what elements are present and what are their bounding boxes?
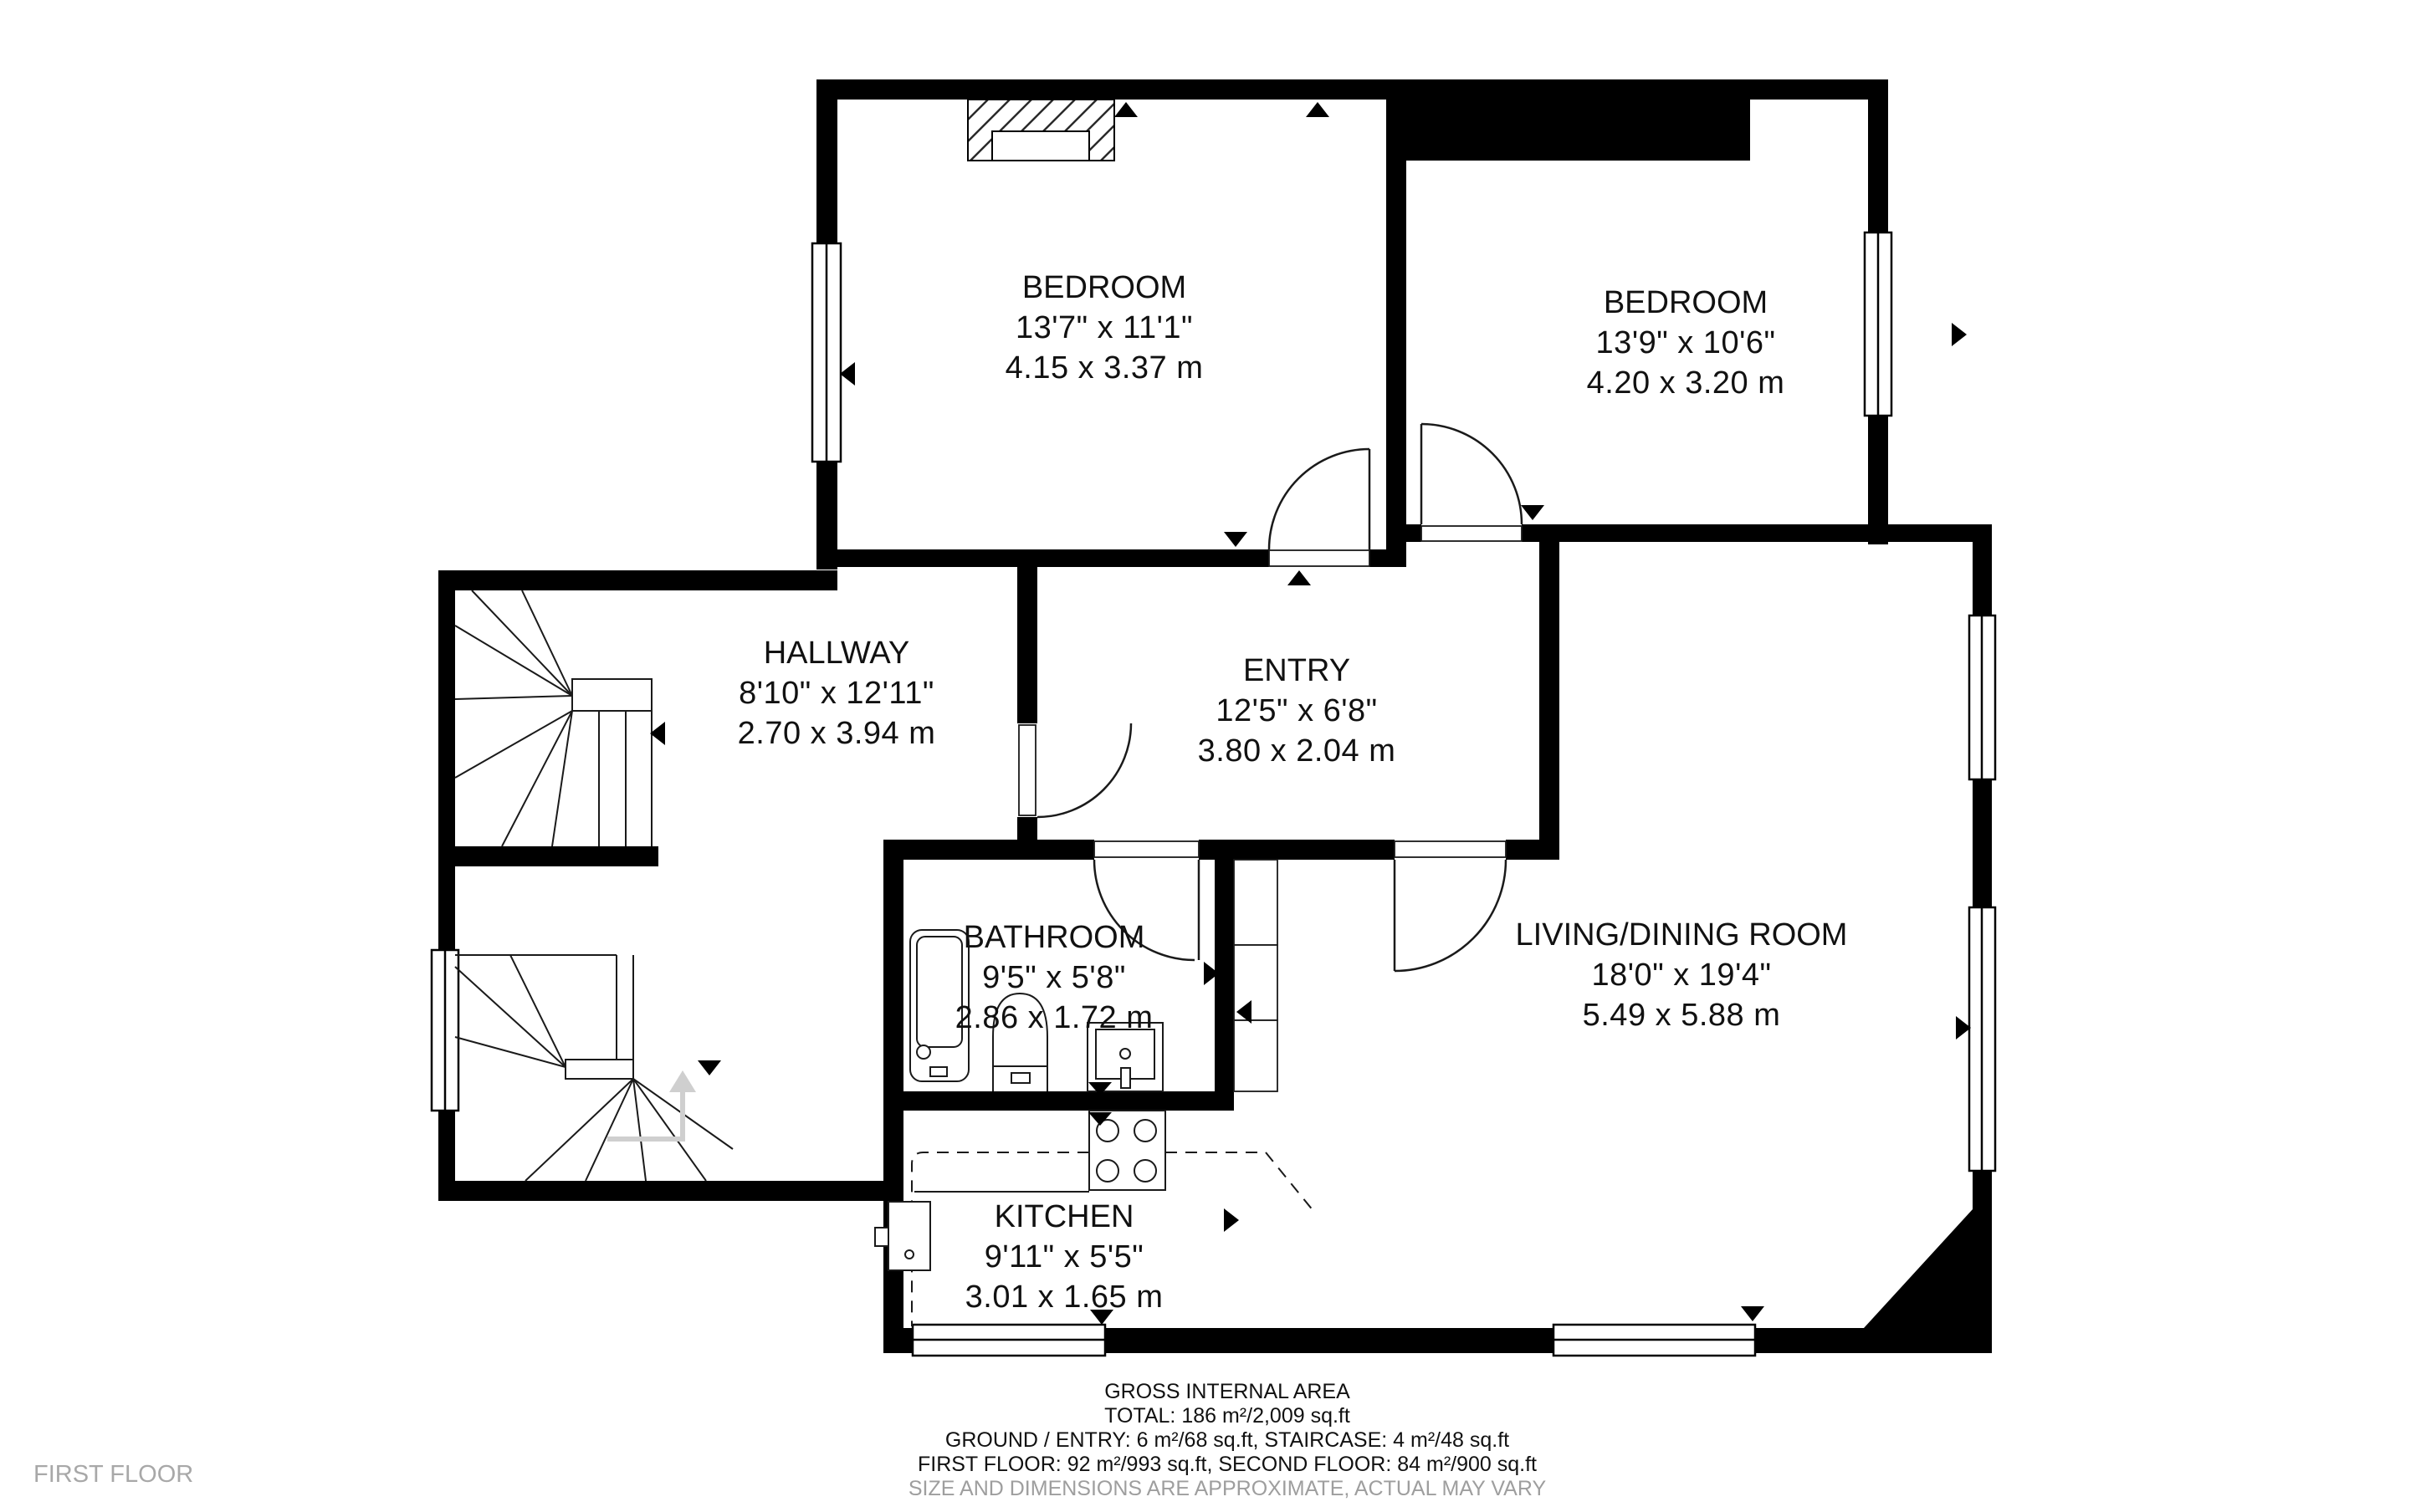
window-living-right-upper — [1969, 616, 1995, 779]
floor-label: FIRST FLOOR — [33, 1461, 193, 1489]
window-living-bottom — [1553, 1325, 1755, 1356]
room-size-metric: 3.80 x 2.04 m — [1198, 731, 1396, 771]
room-size-metric: 4.20 x 3.20 m — [1587, 363, 1785, 403]
room-size-imperial: 18'0" x 19'4" — [1516, 955, 1848, 995]
room-label-hallway: HALLWAY 8'10" x 12'11" 2.70 x 3.94 m — [738, 633, 936, 753]
room-label-living-dining: LIVING/DINING ROOM 18'0" x 19'4" 5.49 x … — [1516, 915, 1848, 1035]
room-size-imperial: 9'5" x 5'8" — [955, 958, 1154, 998]
room-size-imperial: 13'9" x 10'6" — [1587, 323, 1785, 363]
room-size-imperial: 13'7" x 11'1" — [1006, 308, 1204, 348]
staircase-upper — [455, 590, 652, 846]
room-label-bathroom: BATHROOM 9'5" x 5'8" 2.86 x 1.72 m — [955, 917, 1154, 1038]
staircase-lower — [455, 955, 733, 1181]
room-size-metric: 3.01 x 1.65 m — [965, 1277, 1164, 1317]
room-size-imperial: 12'5" x 6'8" — [1198, 691, 1396, 731]
door-bedroom2 — [1421, 424, 1522, 541]
room-size-imperial: 9'11" x 5'5" — [965, 1237, 1164, 1277]
footer-floors: FIRST FLOOR: 92 m²/993 sq.ft, SECOND FLO… — [909, 1453, 1546, 1477]
door-bedroom1 — [1269, 449, 1369, 566]
window-bedroom2-right — [1865, 232, 1891, 416]
room-size-metric: 4.15 x 3.37 m — [1006, 348, 1204, 388]
chimney-breast — [968, 100, 1114, 161]
room-name: KITCHEN — [965, 1197, 1164, 1237]
floor-plan-canvas: BEDROOM 13'7" x 11'1" 4.15 x 3.37 m BEDR… — [0, 0, 2421, 1512]
window-bedroom1-left — [812, 243, 841, 462]
kitchen-counter — [1234, 860, 1277, 1091]
room-size-metric: 5.49 x 5.88 m — [1516, 995, 1848, 1035]
room-name: BEDROOM — [1006, 268, 1204, 308]
room-label-bedroom-1: BEDROOM 13'7" x 11'1" 4.15 x 3.37 m — [1006, 268, 1204, 388]
room-label-kitchen: KITCHEN 9'11" x 5'5" 3.01 x 1.65 m — [965, 1197, 1164, 1317]
room-size-metric: 2.70 x 3.94 m — [738, 713, 936, 753]
room-name: LIVING/DINING ROOM — [1516, 915, 1848, 955]
footer-ground-entry: GROUND / ENTRY: 6 m²/68 sq.ft, STAIRCASE… — [909, 1428, 1546, 1453]
door-hallway-entry — [1019, 723, 1131, 817]
window-stairs-left — [432, 950, 458, 1111]
room-name: BEDROOM — [1587, 283, 1785, 323]
footer-total: TOTAL: 186 m²/2,009 sq.ft — [909, 1404, 1546, 1428]
room-size-metric: 2.86 x 1.72 m — [955, 998, 1154, 1038]
window-kitchen-bottom — [913, 1325, 1105, 1356]
room-name: ENTRY — [1198, 651, 1396, 691]
room-label-entry: ENTRY 12'5" x 6'8" 3.80 x 2.04 m — [1198, 651, 1396, 771]
room-name: BATHROOM — [955, 917, 1154, 958]
door-entry-living — [1395, 841, 1506, 971]
window-living-right-lower — [1969, 907, 1995, 1171]
footer-title: GROSS INTERNAL AREA — [909, 1380, 1546, 1404]
fireplace-recess — [992, 131, 1089, 161]
room-name: HALLWAY — [738, 633, 936, 673]
boiler — [875, 1202, 930, 1270]
room-size-imperial: 8'10" x 12'11" — [738, 673, 936, 713]
room-label-bedroom-2: BEDROOM 13'9" x 10'6" 4.20 x 3.20 m — [1587, 283, 1785, 403]
gross-internal-area-note: GROSS INTERNAL AREA TOTAL: 186 m²/2,009 … — [909, 1380, 1546, 1501]
footer-disclaimer: SIZE AND DIMENSIONS ARE APPROXIMATE, ACT… — [909, 1477, 1546, 1501]
